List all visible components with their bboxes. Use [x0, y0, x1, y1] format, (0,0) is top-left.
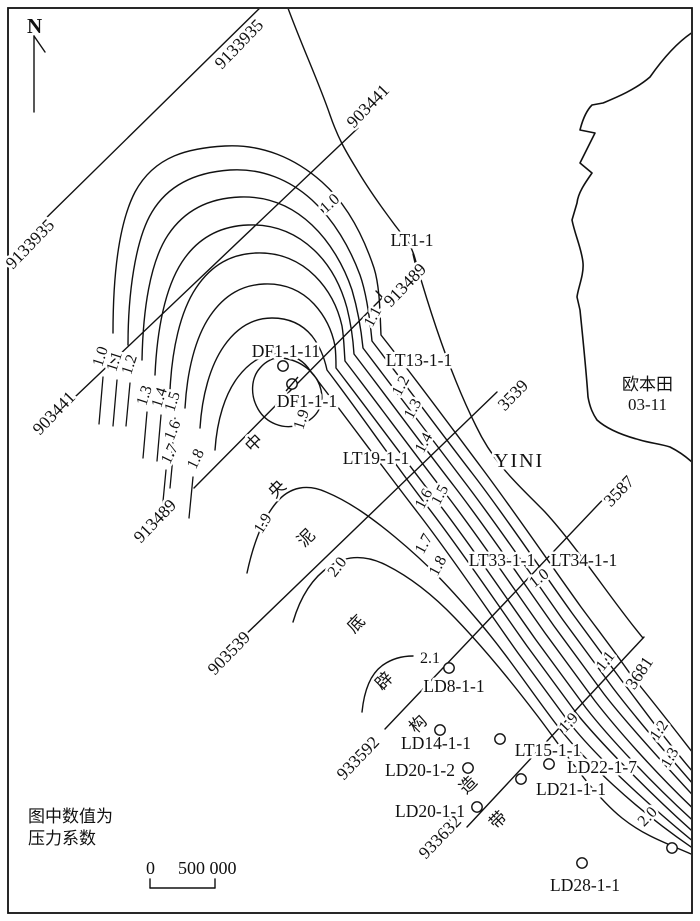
- section-line-label: 913489: [129, 495, 180, 547]
- well-symbol-circle: [463, 763, 473, 773]
- contour-value-label: 1.9: [291, 407, 313, 431]
- contour-value-label: 1.7: [158, 441, 182, 466]
- contour-value-label: 1.9: [251, 511, 276, 537]
- area-code-label: 03-11: [628, 395, 667, 414]
- well-symbol-circle: [516, 774, 526, 784]
- belt-name-char: 底: [343, 611, 368, 636]
- belt-name-char: 造: [455, 772, 480, 797]
- contour-value-label: 1.7: [412, 531, 436, 557]
- well-label: LD20-1-1: [395, 801, 465, 821]
- well-symbol-circle: [472, 802, 482, 812]
- section-line-label: 903441: [342, 80, 393, 132]
- contour-1.0-east: [285, 0, 643, 638]
- section-line-label: 933592: [332, 732, 383, 784]
- contour-value-label: 1.0: [317, 191, 343, 217]
- section-line-label: 9133935: [210, 15, 267, 73]
- section-line-label: 9133935: [1, 215, 58, 273]
- contour-value-label: 1.2: [389, 373, 413, 399]
- scale-value-label: 500 000: [178, 858, 237, 878]
- well-label: DF1-1-1: [277, 391, 337, 411]
- contour-value-label: 1.1: [361, 304, 385, 330]
- scale-zero-label: 0: [146, 858, 155, 878]
- north-arrow: [34, 36, 45, 112]
- scale-bar: [150, 879, 215, 888]
- well-symbol-circle: [278, 361, 288, 371]
- well-label: LD21-1-1: [536, 779, 606, 799]
- well-symbol-circle: [667, 843, 677, 853]
- well-label: LT13-1-1: [386, 350, 452, 370]
- section-line-label: 903441: [28, 387, 79, 439]
- well-label: DF1-1-11: [252, 341, 320, 361]
- section-line-label: 3587: [599, 471, 638, 510]
- well-symbol-circle: [544, 759, 554, 769]
- well-symbol-circle: [577, 858, 587, 868]
- section-line-label: 903539: [203, 627, 254, 679]
- well-label: LD14-1-1: [401, 733, 471, 753]
- contour-value-label: 1.4: [412, 430, 436, 456]
- well-label: LT34-1-1: [551, 550, 617, 570]
- north-label: N: [27, 14, 42, 38]
- well-label: LD22-1-7: [567, 757, 637, 777]
- well-label: LD8-1-1: [423, 676, 484, 696]
- region-name-label: YINI: [494, 450, 544, 472]
- legend-note-line2: 压力系数: [28, 829, 96, 848]
- contour-arc-4: [155, 225, 700, 803]
- belt-name-char: 中: [241, 430, 266, 455]
- contour-value-label: 1.3: [401, 396, 425, 422]
- well-symbol-circle: [495, 734, 505, 744]
- belt-name-char: 泥: [293, 525, 318, 550]
- well-label: LT19-1-1: [343, 448, 409, 468]
- contour-value-label: 2.1: [420, 650, 440, 667]
- belt-name-char: 带: [485, 807, 510, 832]
- well-label: LT1-1: [390, 230, 433, 250]
- pressure-coefficient-contour-map: 9133935913393590344190344191348991348935…: [0, 0, 700, 921]
- belt-name-char: 央: [264, 476, 289, 501]
- well-symbol-circle: [444, 663, 454, 673]
- area-name-label: 欧本田: [622, 375, 673, 394]
- well-label: LD28-1-1: [550, 875, 620, 895]
- contour-value-label: 2.0: [325, 554, 351, 580]
- contour-value-label: 1.8: [426, 553, 450, 579]
- well-label: LT33-1-1: [469, 550, 535, 570]
- section-line-933592-3587: [385, 490, 612, 729]
- well-label: LD20-1-2: [385, 760, 455, 780]
- legend-note-line1: 图中数值为: [28, 807, 113, 826]
- contour-value-label: 1.8: [184, 446, 208, 471]
- well-symbol-circle: [435, 725, 445, 735]
- contour-value-label: 1.6: [161, 418, 184, 443]
- section-line-label: 3539: [493, 375, 532, 414]
